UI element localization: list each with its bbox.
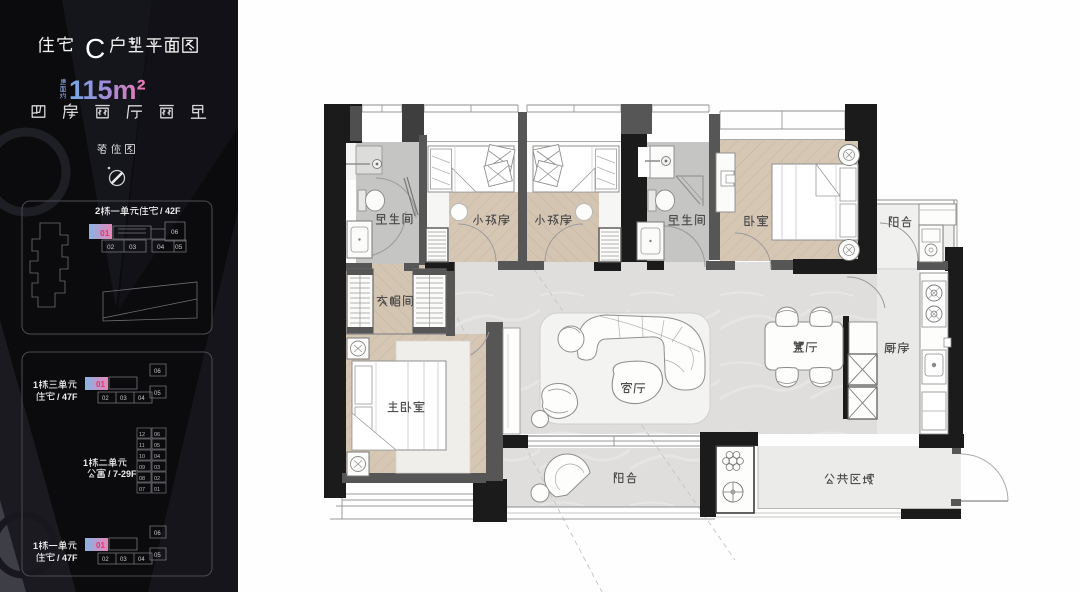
- svg-text:/ 42F: / 42F: [160, 206, 181, 216]
- svg-text:/ 47F: / 47F: [57, 392, 78, 402]
- svg-text:06: 06: [154, 432, 160, 438]
- svg-text:03: 03: [120, 557, 127, 563]
- svg-text:07: 07: [139, 487, 145, 493]
- svg-text:02: 02: [102, 396, 109, 402]
- svg-text:08: 08: [139, 476, 145, 482]
- svg-text:1: 1: [33, 380, 38, 390]
- svg-text:04: 04: [138, 557, 145, 563]
- svg-text:03: 03: [154, 465, 160, 471]
- svg-text:06: 06: [171, 229, 179, 236]
- svg-text:02: 02: [154, 476, 160, 482]
- svg-text:01: 01: [154, 487, 160, 493]
- svg-text:12: 12: [139, 432, 145, 438]
- svg-text:04: 04: [138, 396, 145, 402]
- svg-text:01: 01: [96, 541, 105, 550]
- svg-text:04: 04: [157, 244, 165, 251]
- svg-text:/ 47F: / 47F: [57, 553, 78, 563]
- svg-text:02: 02: [102, 557, 109, 563]
- svg-text:10: 10: [139, 454, 145, 460]
- svg-text:05: 05: [154, 391, 161, 397]
- svg-text:06: 06: [154, 369, 161, 375]
- svg-text:05: 05: [175, 244, 183, 251]
- svg-text:03: 03: [129, 244, 137, 251]
- svg-text:02: 02: [107, 244, 115, 251]
- svg-text:1: 1: [83, 458, 88, 468]
- svg-text:115m²: 115m²: [69, 75, 146, 105]
- svg-text:05: 05: [154, 553, 161, 559]
- svg-text:03: 03: [120, 396, 127, 402]
- svg-text:1: 1: [33, 541, 38, 551]
- svg-text:01: 01: [96, 380, 105, 389]
- svg-text:01: 01: [100, 228, 110, 238]
- svg-text:09: 09: [139, 465, 145, 471]
- svg-text:05: 05: [154, 443, 160, 449]
- svg-text:2: 2: [95, 206, 100, 217]
- svg-text:11: 11: [139, 443, 145, 449]
- svg-text:04: 04: [154, 454, 160, 460]
- svg-text:06: 06: [154, 531, 161, 537]
- svg-text:/ 7-29F: / 7-29F: [108, 469, 137, 479]
- svg-text:C: C: [85, 33, 105, 64]
